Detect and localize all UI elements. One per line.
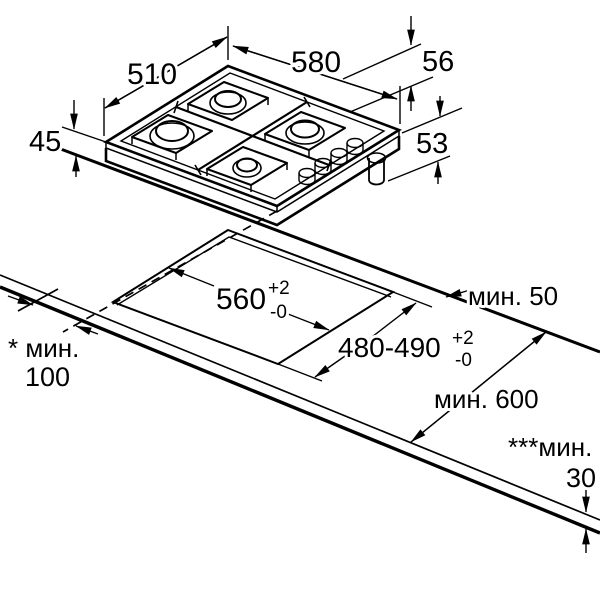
dim-560-arrow-right xyxy=(288,314,329,330)
worktop-thickness-value: 30 xyxy=(566,463,596,493)
burner-back xyxy=(210,91,246,114)
worktop-depth-label: мин. 600 xyxy=(434,384,539,414)
installation-diagram: 510 580 56 53 45 560 +2 -0 480-490 +2 -0… xyxy=(0,0,600,600)
cutout-width-tolerance-minus: -0 xyxy=(270,302,287,323)
dim-510-label: 510 xyxy=(127,58,177,91)
ext-line-45 xyxy=(62,127,106,142)
ext-lines-56 xyxy=(343,44,433,112)
worktop-thickness-label: ***мин. xyxy=(508,432,592,462)
burner-cap xyxy=(237,159,257,172)
knob-top xyxy=(331,149,347,158)
worktop-back-edge xyxy=(58,148,600,352)
dim-580-label: 580 xyxy=(291,46,341,79)
clearance-rear-label: мин. 50 xyxy=(468,281,558,311)
dim-45-label: 45 xyxy=(29,126,61,158)
dim-53-label: 53 xyxy=(416,128,448,160)
burner-left xyxy=(150,121,194,149)
clearance-side-label: * мин. xyxy=(8,333,79,363)
dim-50-leader-arrow xyxy=(446,290,470,297)
dim-56-label: 56 xyxy=(422,46,454,78)
cutout-depth-tolerance-plus: +2 xyxy=(452,328,474,349)
burner-right xyxy=(286,121,324,145)
burner-cap xyxy=(291,121,319,138)
burners xyxy=(150,91,324,177)
grate-frame-front xyxy=(207,147,287,185)
burner-front xyxy=(233,159,261,178)
clearance-side-value: 100 xyxy=(25,362,70,392)
worktop xyxy=(0,148,600,533)
dim-560-arrow-left xyxy=(169,268,214,286)
knob-top xyxy=(347,139,363,148)
knob-top xyxy=(299,169,315,178)
burner-cap xyxy=(215,91,241,107)
diagram-canvas: 510 580 56 53 45 560 +2 -0 480-490 +2 -0… xyxy=(0,0,600,600)
cutout-depth-label: 480-490 xyxy=(338,332,441,363)
cutout-width-label: 560 xyxy=(216,283,266,316)
cutout-width-tolerance-plus: +2 xyxy=(268,278,290,299)
cutout-depth-tolerance-minus: -0 xyxy=(455,350,472,371)
burner-cap xyxy=(156,121,188,141)
